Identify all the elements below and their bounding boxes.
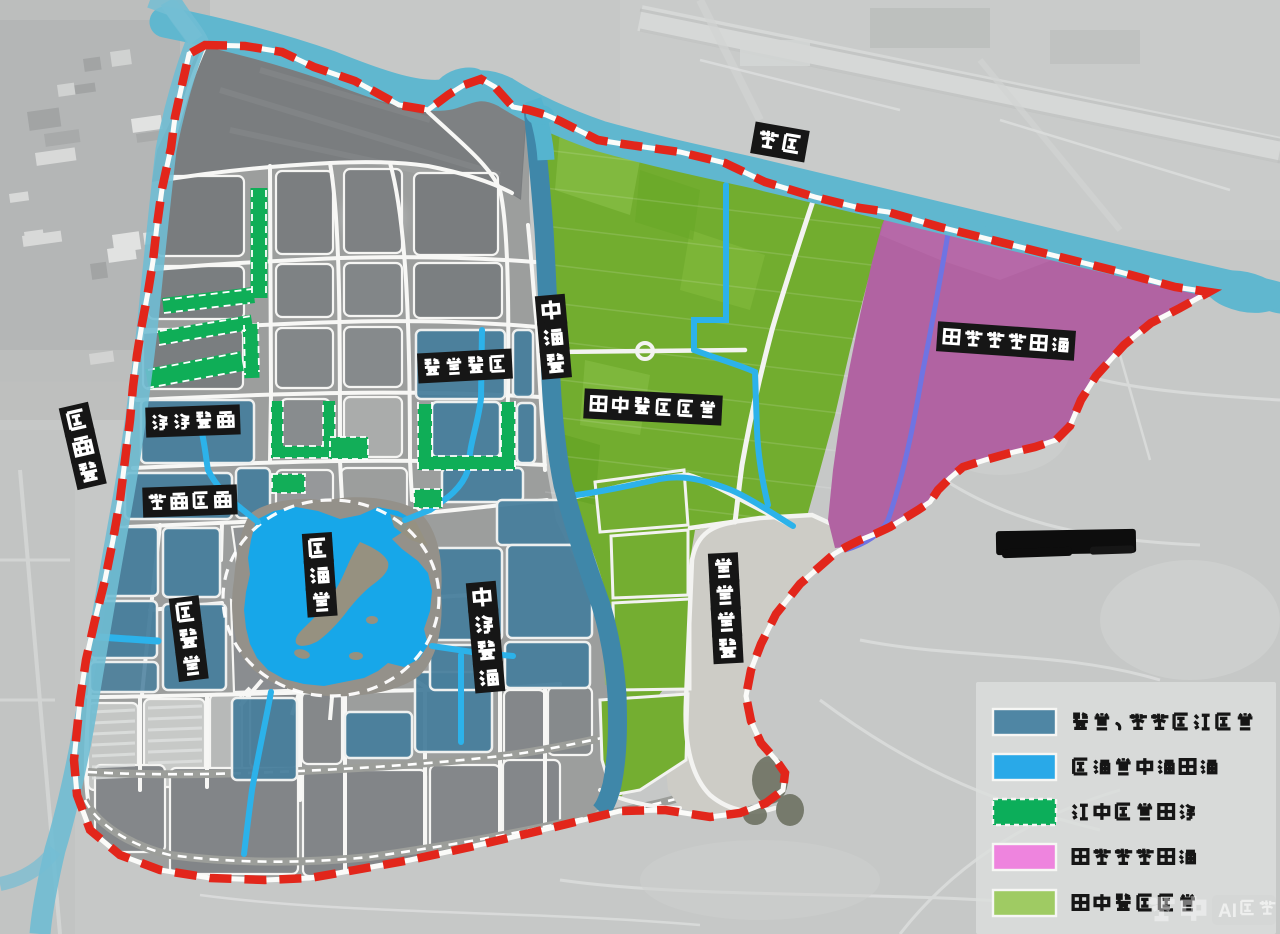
svg-text:AI: AI	[1218, 901, 1237, 922]
